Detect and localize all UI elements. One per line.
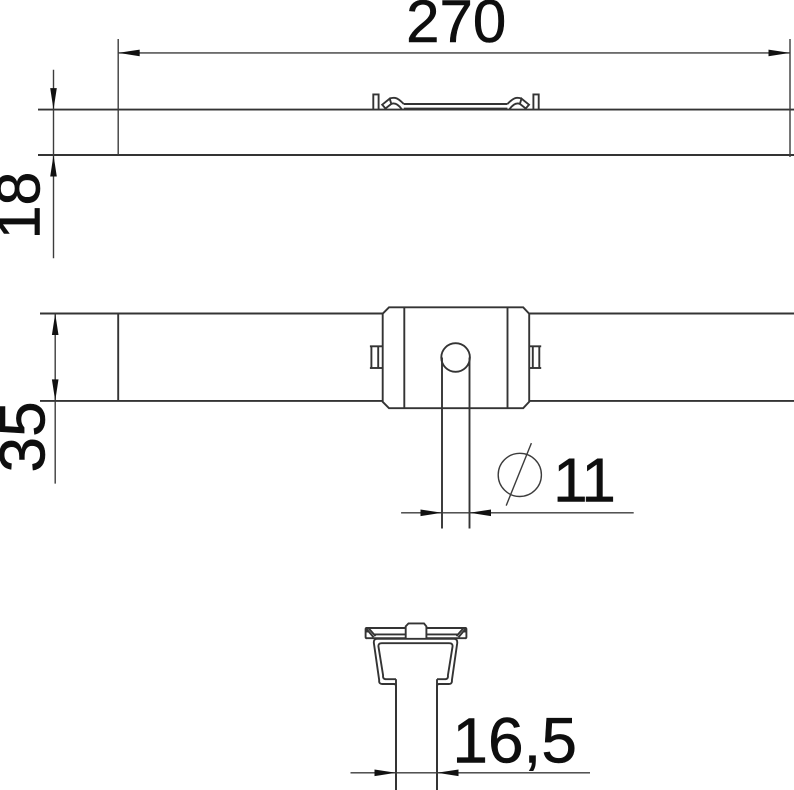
svg-text:35: 35 bbox=[0, 401, 59, 472]
svg-text:18: 18 bbox=[0, 172, 53, 240]
svg-text:270: 270 bbox=[406, 0, 506, 55]
svg-text:16,5: 16,5 bbox=[452, 705, 577, 777]
svg-text:1: 1 bbox=[581, 447, 615, 516]
